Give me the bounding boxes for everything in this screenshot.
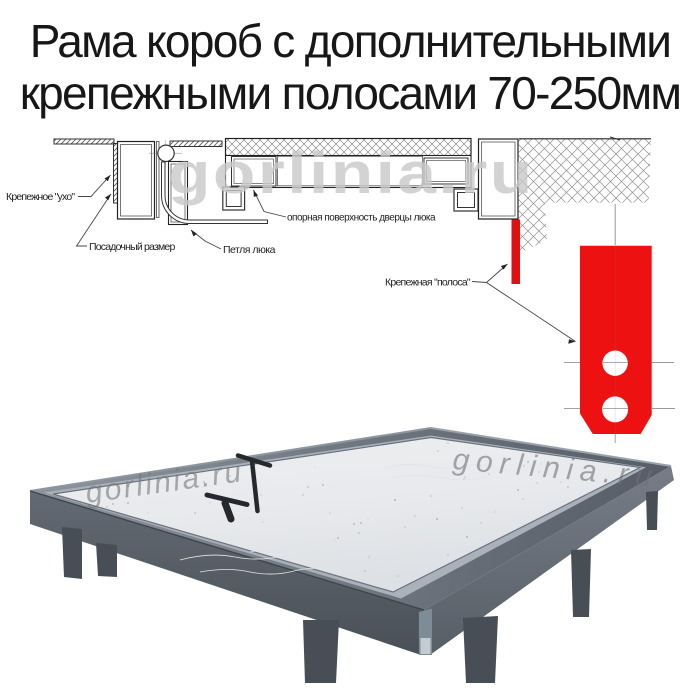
svg-text:Петля люка: Петля люка bbox=[223, 244, 276, 256]
svg-text:опорная поверхность дверцы люк: опорная поверхность дверцы люка bbox=[287, 213, 436, 224]
svg-text:Крепежная "полоса": Крепежная "полоса" bbox=[385, 277, 471, 289]
svg-text:Посадочный размер: Посадочный размер bbox=[89, 241, 175, 253]
svg-text:gorlinia.ru: gorlinia.ru bbox=[168, 140, 535, 205]
svg-text:Крепежное "ухо": Крепежное "ухо" bbox=[6, 191, 75, 203]
